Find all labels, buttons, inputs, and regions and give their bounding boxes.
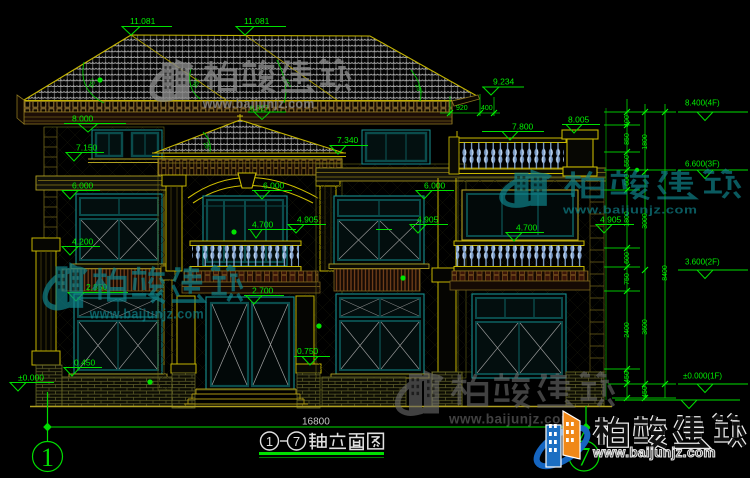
svg-text:0.450: 0.450 [74, 358, 96, 368]
svg-text:1: 1 [266, 434, 273, 449]
svg-text:8.005: 8.005 [568, 115, 590, 125]
svg-text:4.700: 4.700 [252, 220, 274, 230]
svg-text:www.baijunjz.com: www.baijunjz.com [202, 97, 315, 111]
svg-text:16800: 16800 [302, 417, 330, 428]
svg-text:4.905: 4.905 [417, 215, 439, 225]
svg-text:6.000: 6.000 [263, 181, 285, 191]
svg-text:6.000: 6.000 [72, 181, 94, 191]
svg-text:3.600(2F): 3.600(2F) [685, 258, 720, 267]
svg-text:www.baijunjz.com: www.baijunjz.com [89, 306, 204, 322]
svg-text:0.750: 0.750 [297, 346, 319, 356]
svg-text:3600: 3600 [642, 319, 649, 335]
svg-text:4.905: 4.905 [297, 215, 319, 225]
svg-text:450: 450 [642, 386, 649, 398]
svg-text:400: 400 [481, 105, 493, 112]
svg-text:7: 7 [293, 434, 300, 449]
svg-text:1: 1 [41, 443, 54, 472]
svg-text:400: 400 [624, 115, 631, 127]
svg-text:±0.000(1F): ±0.000(1F) [683, 372, 722, 381]
svg-text:4.700: 4.700 [516, 223, 538, 233]
svg-text:6.600(3F): 6.600(3F) [685, 160, 720, 169]
svg-text:www.baijunjz.com: www.baijunjz.com [592, 445, 716, 460]
svg-text:www.baijunjz.com: www.baijunjz.com [562, 203, 698, 216]
svg-text:550: 550 [624, 155, 631, 167]
svg-text:8.000: 8.000 [72, 114, 94, 124]
svg-text:6.000: 6.000 [424, 181, 446, 191]
svg-text:600: 600 [624, 252, 631, 264]
svg-text:7.150: 7.150 [76, 143, 98, 153]
svg-text:±0.000: ±0.000 [18, 373, 44, 383]
svg-text:450: 450 [624, 371, 631, 383]
svg-text:9.234: 9.234 [493, 77, 515, 87]
svg-text:7.340: 7.340 [337, 135, 359, 145]
svg-text:750: 750 [624, 273, 631, 285]
svg-text:11.081: 11.081 [130, 16, 156, 26]
svg-text:8400: 8400 [662, 265, 669, 281]
svg-text:2400: 2400 [624, 322, 631, 338]
svg-text:850: 850 [624, 133, 631, 145]
svg-text:2.700: 2.700 [252, 286, 274, 296]
svg-text:1800: 1800 [642, 134, 649, 150]
svg-text:4.905: 4.905 [600, 215, 622, 225]
svg-text:11.081: 11.081 [244, 16, 270, 26]
svg-text:7.800: 7.800 [512, 122, 534, 132]
svg-text:8.400(4F): 8.400(4F) [685, 99, 720, 108]
svg-text:920: 920 [456, 105, 468, 112]
svg-text:4.200: 4.200 [72, 237, 94, 247]
